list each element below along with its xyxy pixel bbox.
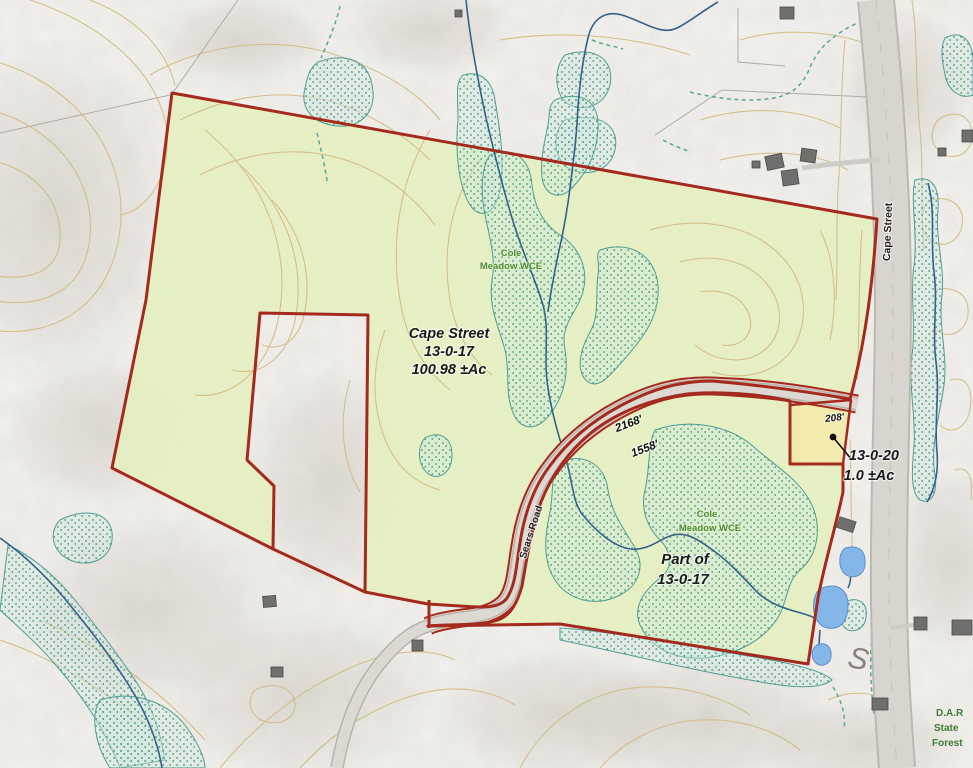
state-forest-label-line3: Forest (932, 738, 963, 749)
wce-north-label-line1: Cole (501, 248, 522, 259)
parcel-map: Cape Street 13-0-17 100.98 ±Ac Cole Mead… (0, 0, 973, 768)
south-parcel-label-line1: Part of (661, 551, 711, 568)
state-forest-label-line1: D.A.R (936, 708, 964, 719)
main-parcel-label-line3: 100.98 ±Ac (412, 362, 487, 378)
cape-street-label: Cape Street (881, 202, 895, 261)
small-parcel-label-line2: 1.0 ±Ac (844, 468, 895, 484)
wce-south-label-line1: Cole (697, 509, 718, 520)
main-parcel-label-line1: Cape Street (409, 326, 491, 342)
small-parcel-label-line1: 13-0-20 (849, 448, 899, 464)
wce-south-label-line2: Meadow WCE (679, 523, 741, 534)
state-forest-label-line2: State (934, 723, 959, 734)
wce-north-label-line2: Meadow WCE (480, 261, 542, 272)
main-parcel-label-line2: 13-0-17 (424, 344, 475, 360)
small-parcel-point (830, 434, 837, 441)
pond-wetland-northwest (304, 58, 373, 126)
map-canvas: Cape Street 13-0-17 100.98 ±Ac Cole Mead… (0, 0, 973, 768)
south-parcel-label-line2: 13-0-17 (657, 571, 709, 588)
